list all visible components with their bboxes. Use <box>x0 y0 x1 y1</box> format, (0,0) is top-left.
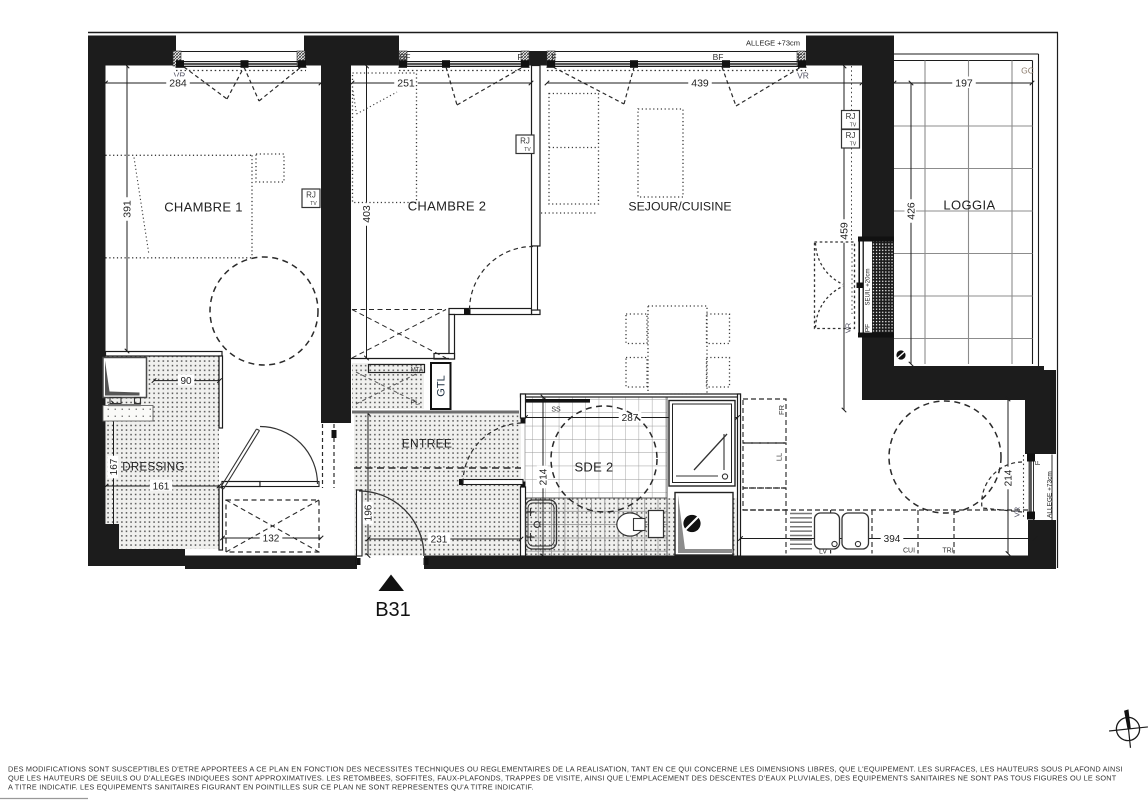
svg-text:LOGGIA: LOGGIA <box>943 198 995 213</box>
svg-text:CHAMBRE 1: CHAMBRE 1 <box>164 200 243 215</box>
svg-text:SEJOUR/CUISINE: SEJOUR/CUISINE <box>628 200 731 214</box>
svg-text:403: 403 <box>361 205 373 223</box>
svg-text:GTL: GTL <box>436 375 448 396</box>
svg-text:394: 394 <box>884 534 901 545</box>
svg-text:439: 439 <box>691 78 709 90</box>
svg-text:QUE LES HAUTEURS DE SEUILS OU: QUE LES HAUTEURS DE SEUILS OU D'ALLEGES … <box>8 774 1117 783</box>
svg-text:F: F <box>1033 460 1042 465</box>
svg-text:VR: VR <box>844 322 853 333</box>
svg-text:F: F <box>797 52 802 62</box>
svg-text:TV: TV <box>524 147 531 153</box>
svg-text:214: 214 <box>1003 469 1014 486</box>
svg-text:A TITRE INDICATIF. LES EQUIPEM: A TITRE INDICATIF. LES EQUIPEMENTS SANIT… <box>8 783 534 792</box>
svg-text:LL: LL <box>775 453 784 461</box>
svg-text:CUI: CUI <box>903 548 915 555</box>
svg-text:459: 459 <box>839 222 851 240</box>
svg-text:BF: BF <box>400 52 411 62</box>
svg-text:SS: SS <box>551 407 561 414</box>
svg-text:214: 214 <box>538 468 549 485</box>
svg-text:F: F <box>551 52 556 62</box>
svg-text:BF: BF <box>713 52 724 62</box>
svg-text:132: 132 <box>263 533 280 544</box>
svg-text:197: 197 <box>955 78 973 90</box>
svg-text:SDE 2: SDE 2 <box>574 460 613 475</box>
svg-text:167: 167 <box>109 458 120 475</box>
svg-text:ALLEGE +73cm: ALLEGE +73cm <box>746 39 800 48</box>
svg-text:VR: VR <box>797 71 809 81</box>
svg-text:391: 391 <box>122 200 134 218</box>
svg-text:231: 231 <box>431 534 448 545</box>
svg-text:426: 426 <box>906 202 918 220</box>
svg-text:PL: PL <box>410 400 419 407</box>
svg-text:TV: TV <box>850 142 857 148</box>
svg-text:251: 251 <box>397 78 415 90</box>
svg-text:VR: VR <box>1013 506 1022 517</box>
svg-text:CHAMBRE 2: CHAMBRE 2 <box>408 199 487 214</box>
svg-text:MTA: MTA <box>411 368 423 374</box>
svg-text:SEUIL +20cm: SEUIL +20cm <box>866 269 872 306</box>
svg-text:GC: GC <box>1021 66 1034 76</box>
svg-text:DRESSING: DRESSING <box>122 462 184 474</box>
svg-text:ENTREE: ENTREE <box>402 437 452 451</box>
svg-text:RJ: RJ <box>846 112 856 121</box>
svg-text:LV: LV <box>819 549 827 556</box>
svg-text:FR: FR <box>777 404 786 415</box>
svg-text:B31: B31 <box>375 599 411 621</box>
svg-text:90: 90 <box>180 376 192 387</box>
svg-text:F: F <box>517 52 522 62</box>
svg-text:284: 284 <box>169 78 187 90</box>
svg-text:RJ: RJ <box>520 137 530 146</box>
svg-text:287: 287 <box>622 413 639 424</box>
svg-text:DES MODIFICATIONS SONT SUSCEPT: DES MODIFICATIONS SONT SUSCEPTIBLES D'ET… <box>8 765 1123 774</box>
svg-text:ALLEGE +73cm: ALLEGE +73cm <box>1047 471 1054 518</box>
svg-text:PF: PF <box>865 324 872 332</box>
svg-text:TV: TV <box>310 201 317 207</box>
svg-text:161: 161 <box>153 481 170 492</box>
svg-text:RJ: RJ <box>846 131 856 140</box>
svg-text:TV: TV <box>850 123 857 129</box>
svg-text:TRI: TRI <box>942 548 953 555</box>
svg-text:RJ: RJ <box>306 191 316 200</box>
svg-text:196: 196 <box>363 504 374 521</box>
